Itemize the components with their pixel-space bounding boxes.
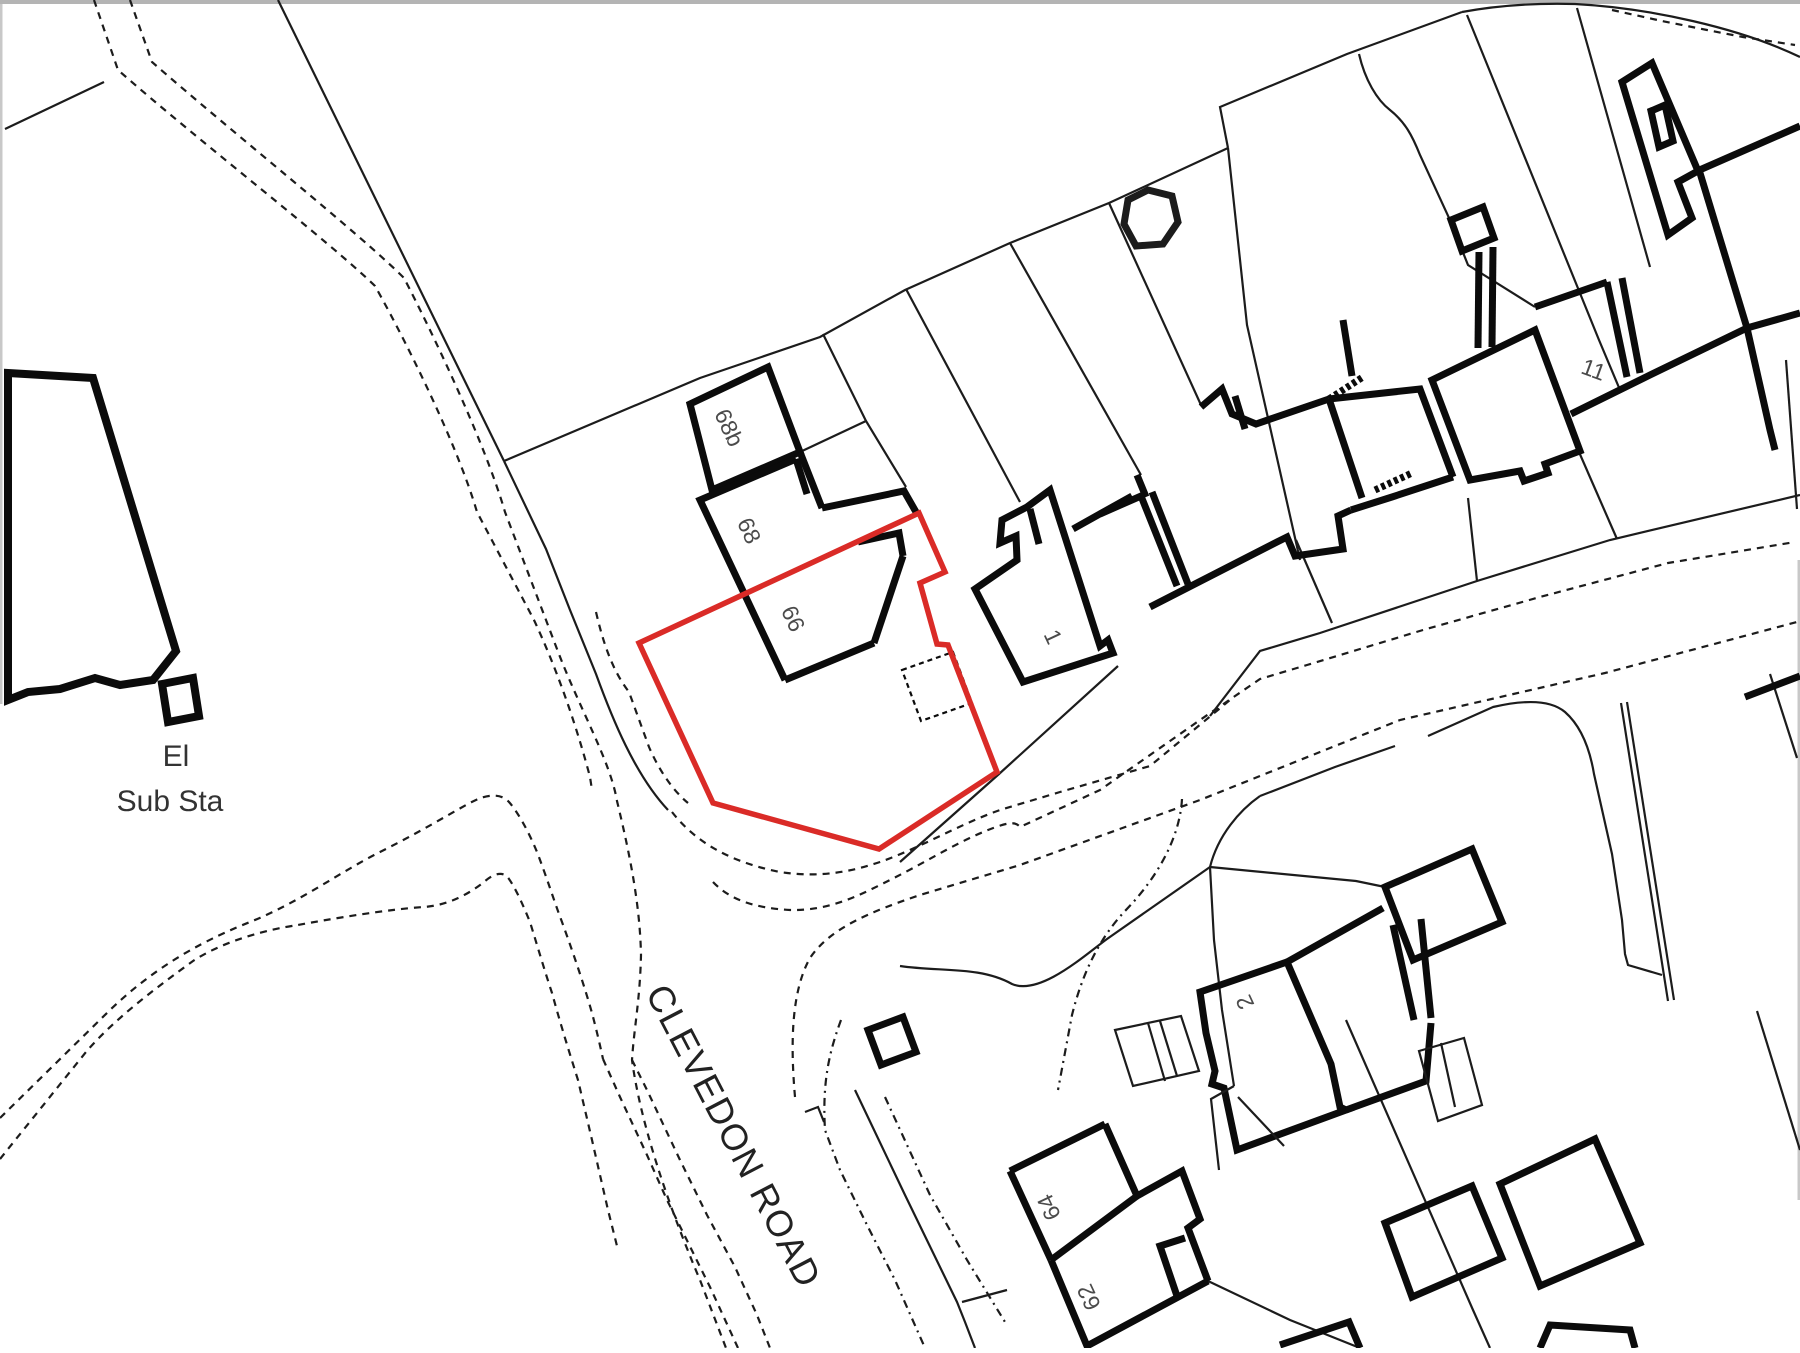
svg-text:68: 68 — [732, 514, 766, 548]
svg-text:El: El — [163, 740, 190, 773]
svg-text:Sub Sta: Sub Sta — [117, 785, 224, 818]
svg-text:1: 1 — [1039, 625, 1068, 648]
svg-text:CLEVEDON ROAD: CLEVEDON ROAD — [638, 978, 830, 1295]
svg-text:2: 2 — [1230, 991, 1259, 1014]
svg-text:66: 66 — [776, 602, 810, 636]
svg-text:64: 64 — [1031, 1190, 1065, 1224]
svg-text:11: 11 — [1578, 353, 1609, 386]
svg-text:62: 62 — [1072, 1280, 1106, 1314]
svg-text:68b: 68b — [709, 405, 749, 451]
